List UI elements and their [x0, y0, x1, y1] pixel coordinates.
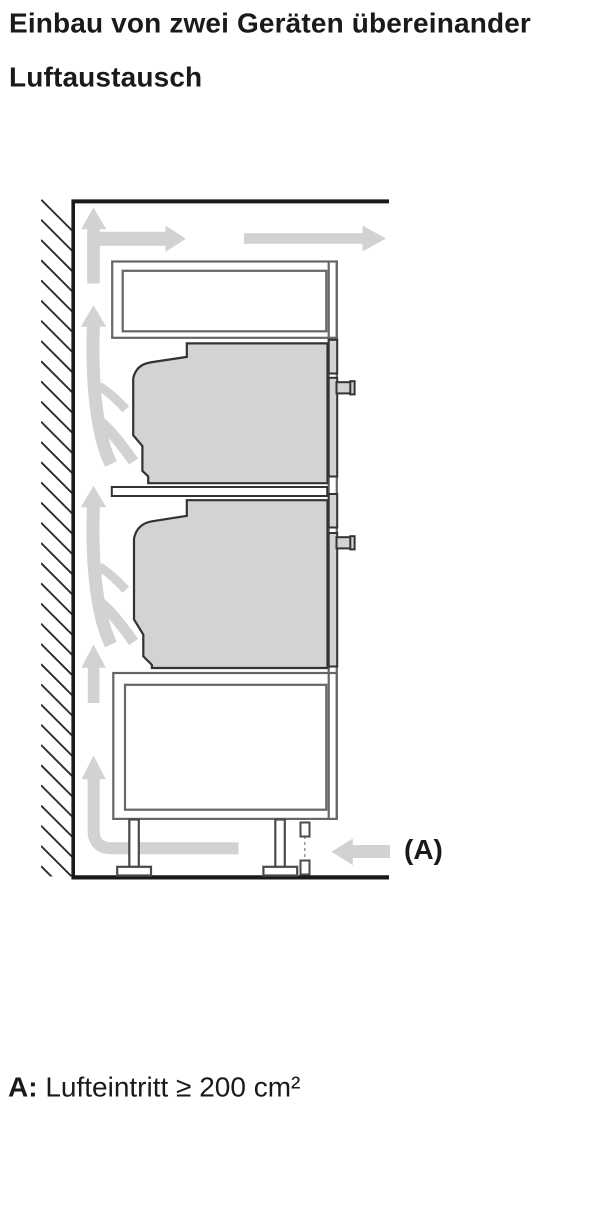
svg-text:Einbau von zwei Geräten überei: Einbau von zwei Geräten übereinander: [9, 8, 531, 39]
svg-text:A: Lufteintritt ≥ 200 cm²: A: Lufteintritt ≥ 200 cm²: [8, 1072, 300, 1103]
svg-text:Luftaustausch: Luftaustausch: [9, 61, 202, 92]
svg-text:(A): (A): [404, 834, 443, 865]
